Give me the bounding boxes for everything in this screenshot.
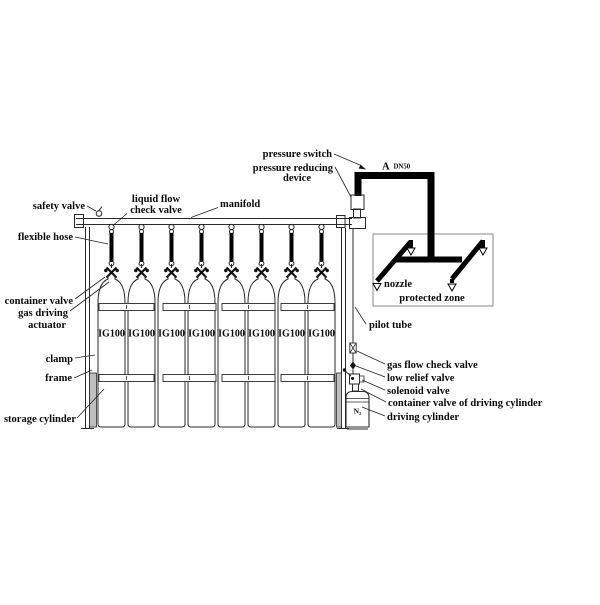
storage-cylinder-body [98,275,125,427]
pressure-reducing-label-2: device [283,173,311,184]
low-relief-valve-label: low relief valve [387,373,455,384]
driving-cylinder-gas-label: N₂ [354,407,362,416]
leader-pressure-reducing-device [335,167,351,197]
container-valve-center [260,271,263,274]
clamp-label: clamp [46,354,74,365]
nozzle-label: nozzle [384,279,412,290]
frame-upright-left [90,373,97,427]
actuator-label: actuator [28,320,66,331]
cylinder-label: IG100 [218,329,245,340]
leader-pressure-switch [334,154,361,166]
storage-cylinder-unit: IG100 [98,224,125,427]
driving-cylinder-container-valve-icon [353,384,359,391]
leader-flexible-hose [75,237,108,244]
driving-cylinder-label: driving cylinder [387,412,459,423]
frame-upright-right [337,373,342,427]
container-valve-center [320,271,323,274]
container-valve-center [140,271,143,274]
cylinder-label: IG100 [308,329,335,340]
cylinder-label: IG100 [188,329,215,340]
cylinder-label: IG100 [158,329,185,340]
storage-cylinder-unit: IG100 [278,224,305,427]
hose-fitting [140,230,144,234]
gas-driving-actuator-icon [176,269,179,272]
safety-valve-label: safety valve [33,201,86,212]
liquid-flow-check-valve-icon [139,224,144,229]
gas-driving-actuator-icon [206,269,209,272]
gas-driving-actuator-icon [326,269,329,272]
gas-driving-actuator-icon [146,269,149,272]
liquid-flow-check-valve-icon [169,224,174,229]
manifold-outlet-fitting [337,216,346,228]
gas-driving-actuator-icon [296,269,299,272]
pressure-reducing-device-body [351,195,364,210]
hose-fitting [260,230,264,234]
gas-flow-check-valve-label: gas flow check valve [387,360,478,371]
clamps [99,304,334,382]
pipe-section-marker: A [382,162,390,173]
gas-driving-actuator-icon [254,269,257,272]
cylinder-label: IG100 [248,329,275,340]
manifold-label: manifold [220,199,260,210]
solenoid-valve-coil [351,377,354,380]
cylinder-bank: IG100 IG100 IG100 [98,224,335,427]
diagram-page: nozzle protected zone A DN50 [0,0,600,600]
solenoid-valve-label: solenoid valve [387,386,450,397]
cylinder-label: IG100 [278,329,305,340]
storage-cylinder-body [308,275,335,427]
hose-fitting [230,230,234,234]
storage-cylinder-label: storage cylinder [4,414,76,425]
liquid-flow-check-valve-label-1: liquid flow [132,194,181,205]
protected-zone-label: protected zone [399,293,465,304]
safety-valve-icon [96,211,102,217]
hose-fitting [320,230,324,234]
gas-driving-actuator-icon [164,269,167,272]
leader-gas-flow-check-valve [357,351,385,364]
storage-cylinder-body [218,275,245,427]
liquid-flow-check-valve-icon [319,224,324,229]
leader-low-relief-valve [356,366,385,377]
cylinder-label: IG100 [98,329,125,340]
leader-solenoid-valve [362,380,385,390]
leader-liquid-flow-check-valve [113,214,127,226]
container-valve-center [170,271,173,274]
safety-valve-stem [99,207,102,211]
liquid-flow-check-valve-icon [199,224,204,229]
gas-driving-actuator-icon [194,269,197,272]
storage-cylinder-unit: IG100 [188,224,215,427]
container-valve-center [290,271,293,274]
storage-cylinder-unit: IG100 [128,224,155,427]
gas-driving-actuator-icon [104,269,107,272]
liquid-flow-check-valve-label-2: check valve [130,205,182,216]
pilot-line: N₂ [343,229,369,429]
storage-cylinder-unit: IG100 [158,224,185,427]
hose-fitting [170,230,174,234]
manifold-elbow [350,218,366,229]
gas-driving-actuator-icon [224,269,227,272]
storage-cylinder-body [188,275,215,427]
container-valve-label: container valve [5,296,74,307]
storage-cylinder-body [158,275,185,427]
leader-manifold [191,208,218,218]
cylinder-label: IG100 [128,329,155,340]
gas-driving-actuator-icon [266,269,269,272]
manifold-end-cap [75,215,84,228]
fire-suppression-diagram: nozzle protected zone A DN50 [0,0,600,600]
container-valve-center [230,271,233,274]
container-valve-center [200,271,203,274]
liquid-flow-check-valve-icon [259,224,264,229]
gas-driving-actuator-icon [134,269,137,272]
pressure-reducing-device [351,195,364,218]
container-valve-center [110,271,113,274]
leader-pilot-tube [355,307,366,324]
gas-driving-actuator-icon [284,269,287,272]
liquid-flow-check-valve-icon [229,224,234,229]
storage-cylinder-body [278,275,305,427]
gas-driving-actuator-icon [116,269,119,272]
low-relief-valve-icon [350,362,356,370]
gas-driving-label: gas driving [18,308,69,319]
leader-safety-valve [87,206,96,211]
flexible-hose-label: flexible hose [18,232,73,243]
frame-label: frame [45,373,72,384]
liquid-flow-check-valve-icon [289,224,294,229]
storage-cylinder-unit: IG100 [308,224,335,427]
storage-cylinder-body [248,275,275,427]
hose-fitting [290,230,294,234]
storage-cylinder-unit: IG100 [248,224,275,427]
gas-driving-actuator-icon [314,269,317,272]
storage-cylinder-body [128,275,155,427]
gas-driving-actuator-icon [236,269,239,272]
solenoid-valve-port [360,376,365,382]
hose-fitting [110,230,114,234]
pipe-size-label: DN50 [394,164,411,171]
solenoid-valve-knob [343,368,346,371]
pressure-switch-label: pressure switch [263,149,332,160]
storage-cylinder-unit: IG100 [218,224,245,427]
pressure-reducing-device-stem [354,209,361,218]
hose-fitting [200,230,204,234]
pilot-tube-label: pilot tube [369,320,412,331]
container-valve-driving-label: container valve of driving cylinder [388,398,543,409]
